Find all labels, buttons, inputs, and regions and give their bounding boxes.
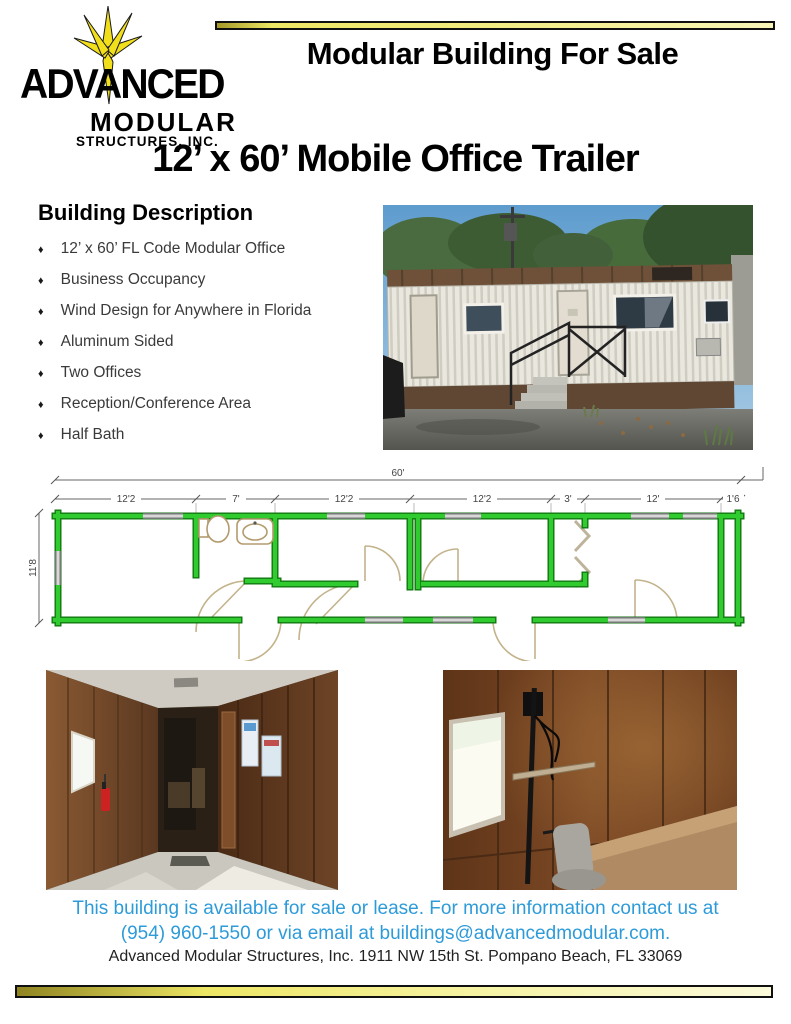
end-window	[705, 300, 729, 322]
diamond-bullet-icon: ♦	[38, 244, 44, 256]
description-item: ♦ Half Bath	[38, 426, 383, 444]
building-description-section: Building Description ♦ 12’ x 60’ FL Code…	[38, 200, 383, 457]
description-item-text: Aluminum Sided	[61, 333, 174, 351]
diamond-bullet-icon: ♦	[38, 368, 44, 380]
description-item: ♦ 12’ x 60’ FL Code Modular Office	[38, 240, 383, 258]
dim-segment: 12'2	[473, 494, 492, 505]
availability-line1: This building is available for sale or l…	[0, 896, 791, 921]
dimension-lines	[35, 467, 763, 627]
left-door	[410, 295, 437, 377]
logo-text-advanced: ADVANCED	[20, 60, 224, 108]
plan-windows	[58, 516, 717, 620]
description-item-text: Business Occupancy	[61, 271, 206, 289]
description-heading: Building Description	[38, 200, 383, 226]
hall-window	[72, 732, 94, 792]
description-item-text: Wind Design for Anywhere in Florida	[61, 302, 312, 320]
hall-door	[222, 712, 235, 848]
diamond-bullet-icon: ♦	[38, 337, 44, 349]
exterior-trailer-photo	[383, 205, 753, 450]
dim-segment: 3'	[564, 494, 572, 505]
dim-segment: 7'	[232, 494, 240, 505]
flyer-page: ADVANCED MODULAR STRUCTURES, INC. Modula…	[0, 0, 791, 1024]
availability-text: This building is available for sale or l…	[0, 896, 791, 946]
gold-banner-bar-bottom	[15, 985, 773, 998]
dim-segment: 12'2	[117, 494, 136, 505]
diamond-bullet-icon: ♦	[38, 306, 44, 318]
diamond-bullet-icon: ♦	[38, 430, 44, 442]
banner-title: Modular Building For Sale	[205, 36, 780, 72]
right-wall	[218, 670, 338, 890]
company-address: Advanced Modular Structures, Inc. 1911 N…	[0, 948, 791, 966]
description-item: ♦ Business Occupancy	[38, 271, 383, 289]
diamond-bullet-icon: ♦	[38, 399, 44, 411]
left-wall	[46, 670, 158, 890]
dimension-labels: 60' 12'2 7' 12'2 12'2 3' 12' 1'6 11'8	[28, 467, 744, 577]
description-item-text: Two Offices	[61, 364, 142, 382]
description-item: ♦ Two Offices	[38, 364, 383, 382]
description-item: ♦ Aluminum Sided	[38, 333, 383, 351]
bathroom-fixtures	[199, 516, 273, 544]
description-item-text: Half Bath	[61, 426, 125, 444]
availability-line2: (954) 960-1550 or via email at buildings…	[0, 921, 791, 946]
gold-banner-bar-top	[215, 21, 775, 30]
dim-depth: 11'8	[28, 559, 39, 577]
door-swings	[196, 546, 677, 661]
toilet-icon	[207, 516, 229, 542]
parked-vehicle	[383, 355, 405, 419]
diamond-bullet-icon: ♦	[38, 275, 44, 287]
description-item-text: 12’ x 60’ FL Code Modular Office	[61, 240, 286, 258]
logo-text-structures: STRUCTURES, INC.	[76, 134, 219, 149]
description-item: ♦ Wind Design for Anywhere in Florida	[38, 302, 383, 320]
background-structure	[731, 255, 753, 385]
ac-unit	[696, 338, 720, 355]
dim-segment: 12'	[646, 494, 659, 505]
description-item: ♦ Reception/Conference Area	[38, 395, 383, 413]
dim-overall-width: 60'	[391, 468, 404, 479]
dim-segment: 1'6	[726, 494, 739, 505]
office-window	[449, 712, 505, 838]
interior-hallway-photo	[46, 670, 338, 890]
dim-segment: 12'2	[335, 494, 354, 505]
description-item-text: Reception/Conference Area	[61, 395, 251, 413]
interior-office-photo	[443, 670, 737, 890]
floor-plan: 60' 12'2 7' 12'2 12'2 3' 12' 1'6 11'8	[25, 463, 775, 661]
left-window	[465, 304, 503, 333]
